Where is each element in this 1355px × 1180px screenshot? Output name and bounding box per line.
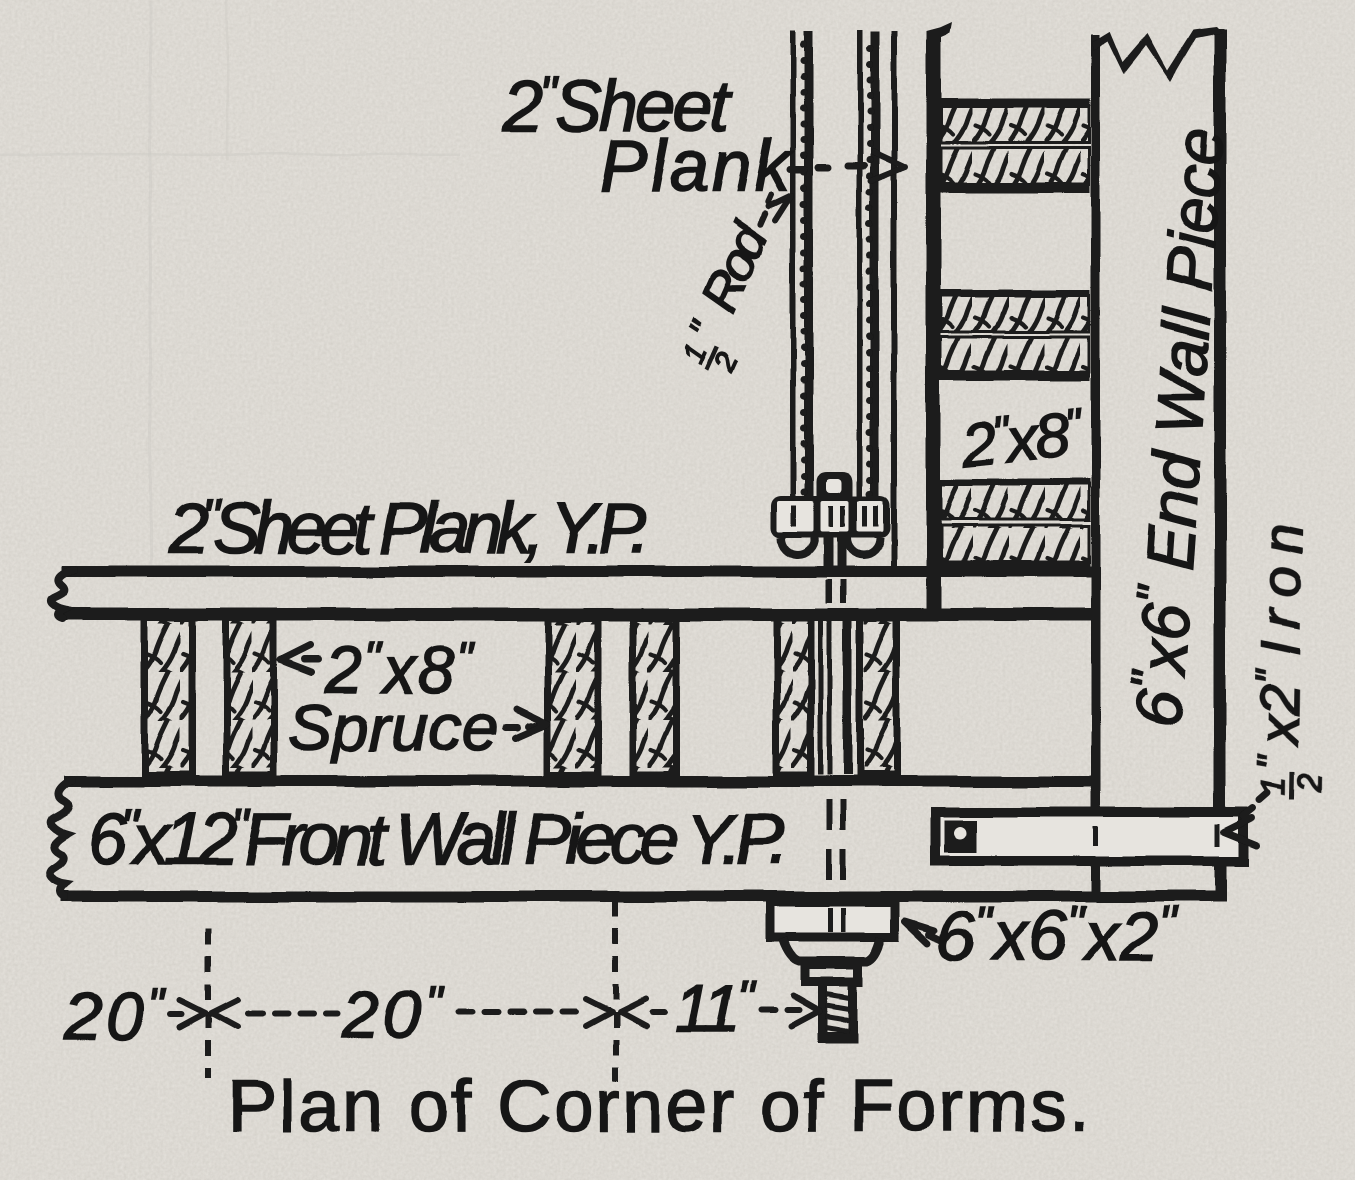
svg-text:2"x8": 2"x8" [958,399,1088,481]
svg-text:6"x6"x2": 6"x6"x2" [936,897,1178,975]
svg-text:Spruce: Spruce [288,690,498,764]
svg-text:Plan of Corner of Forms.: Plan of Corner of Forms. [228,1066,1090,1147]
svg-text:2: 2 [1292,774,1329,794]
svg-text:6"x12"Front Wall Piece Y.P.: 6"x12"Front Wall Piece Y.P. [88,799,788,880]
svg-text:Plank: Plank [600,127,794,207]
svg-text:1: 1 [1255,777,1292,796]
svg-text:": " [1250,753,1294,770]
svg-text:2"Sheet Plank, Y.P.: 2"Sheet Plank, Y.P. [167,488,650,569]
